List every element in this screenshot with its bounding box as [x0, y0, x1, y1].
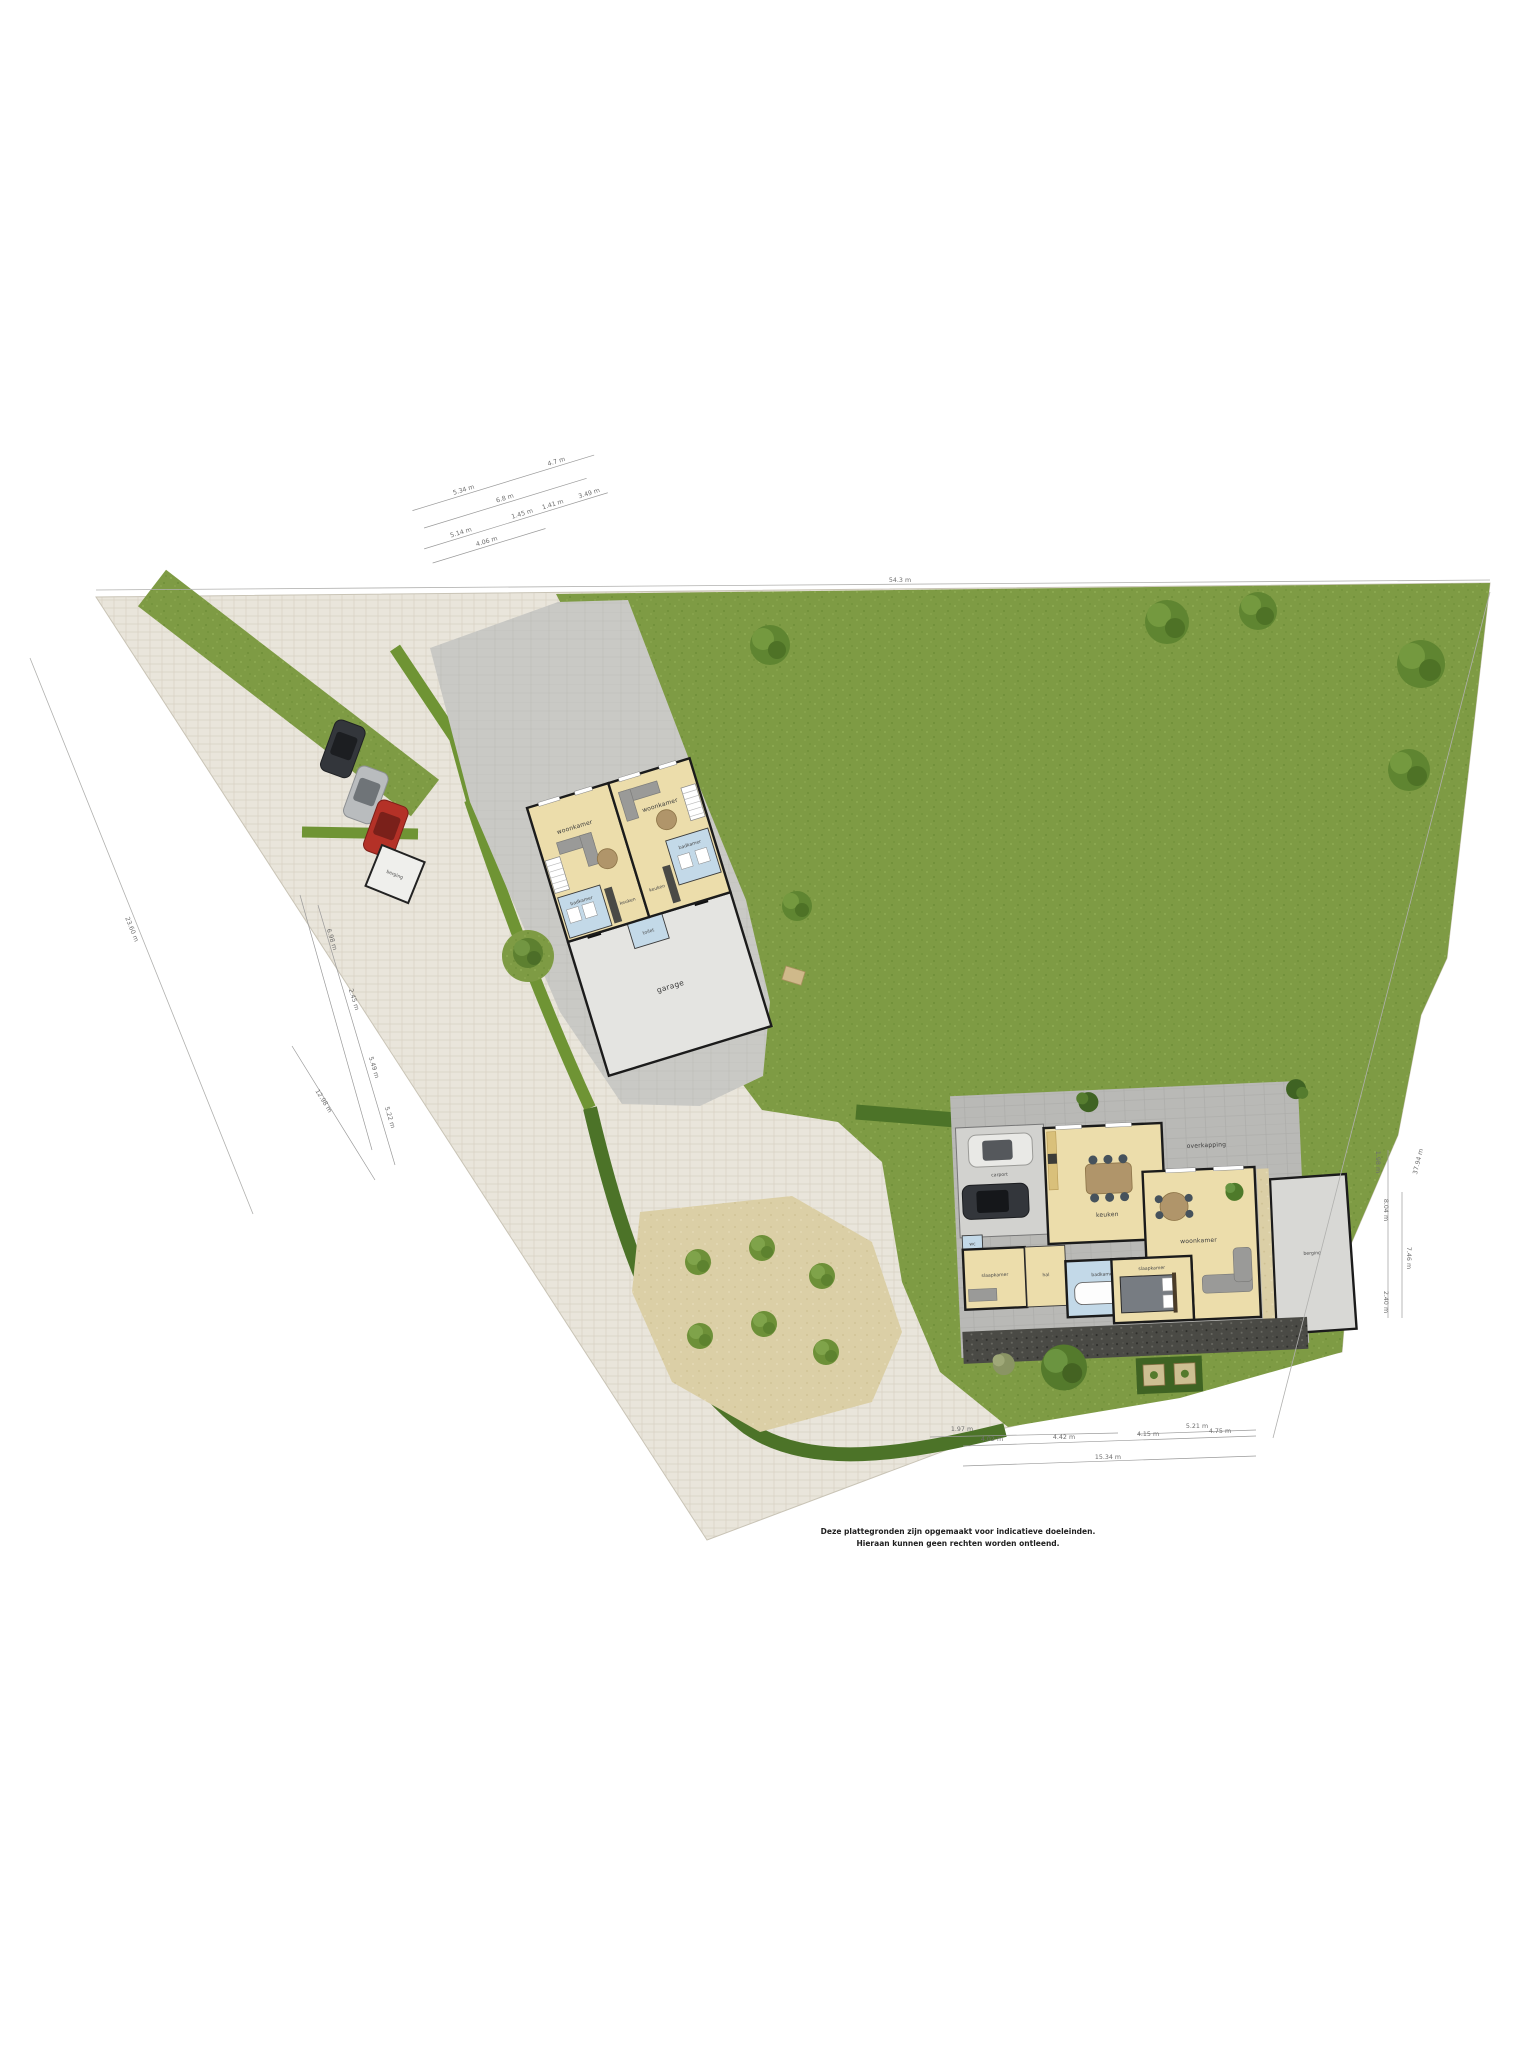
dim-top-2: 4.7 m: [547, 456, 566, 468]
tree: [1239, 592, 1277, 630]
tree: [1388, 749, 1430, 791]
boundary-left-label: 23.60 m: [123, 916, 139, 943]
boundary-right-label: 37.94 m: [1412, 1148, 1425, 1175]
bush-courtyard: [513, 938, 543, 968]
dim-right-2: 7.46 m: [1405, 1247, 1412, 1269]
disclaimer-line-1: Deze plattegronden zijn opgemaakt voor i…: [821, 1527, 1096, 1536]
boundary-top-label: 54.3 m: [889, 577, 911, 584]
bedroom-right-label: slaapkamer: [1138, 1265, 1165, 1272]
bedroom-left-label: slaapkamer: [981, 1272, 1008, 1279]
tree: [687, 1323, 713, 1349]
tree: [751, 1311, 777, 1337]
tree: [1397, 640, 1445, 688]
car-white: [968, 1133, 1033, 1168]
dim-bottom-2: 5.21 m: [1186, 1423, 1208, 1430]
dim-bottom-7: 15.34 m: [1095, 1454, 1121, 1461]
car-dark-driveway: [962, 1183, 1029, 1220]
front-planters: [1136, 1355, 1204, 1394]
dim-bottom-3: 4.02 m: [981, 1436, 1003, 1443]
dim-right-1: 8.04 m: [1382, 1199, 1389, 1221]
dim-top-3: 6.8 m: [495, 493, 514, 505]
dimension-group-top: 5.34 m 4.7 m 6.8 m 5.14 m 1.45 m 1.41 m …: [410, 447, 612, 564]
dim-bottom-1: 1.97 m: [951, 1426, 973, 1433]
living-table: [1154, 1192, 1193, 1222]
wc-label: wc: [969, 1242, 976, 1247]
tree: [1145, 600, 1189, 644]
hedge-row-right-house: [856, 1112, 956, 1120]
dim-bottom-4: 4.42 m: [1053, 1434, 1075, 1441]
tree: [813, 1339, 839, 1365]
tree: [749, 1235, 775, 1261]
dim-bottom-5: 4.15 m: [1137, 1431, 1159, 1438]
disclaimer-line-2: Hieraan kunnen geen rechten worden ontle…: [857, 1539, 1060, 1548]
kitchen-label: keuken: [1096, 1211, 1119, 1219]
dim-left-4: 5.22 m: [383, 1106, 396, 1129]
site-plan-page: berging garage toilet woonkamer badkamer…: [0, 0, 1536, 2048]
tree: [750, 625, 790, 665]
bed: [1120, 1273, 1178, 1315]
dim-bottom-6: 4.75 m: [1209, 1428, 1231, 1435]
tree: [782, 891, 812, 921]
dim-right-4: 1.98 m: [1374, 1151, 1381, 1173]
dim-left-5: 12.98 m: [313, 1088, 333, 1114]
site-plan-canvas: berging garage toilet woonkamer badkamer…: [0, 0, 1536, 2048]
tree: [809, 1263, 835, 1289]
dining-table: [1085, 1154, 1133, 1203]
storage-label: berging: [1303, 1250, 1321, 1257]
dim-right-3: 2.40 m: [1382, 1291, 1389, 1313]
tree: [685, 1249, 711, 1275]
carport-label: carport: [991, 1172, 1008, 1179]
hall-label: hal: [1042, 1272, 1049, 1278]
